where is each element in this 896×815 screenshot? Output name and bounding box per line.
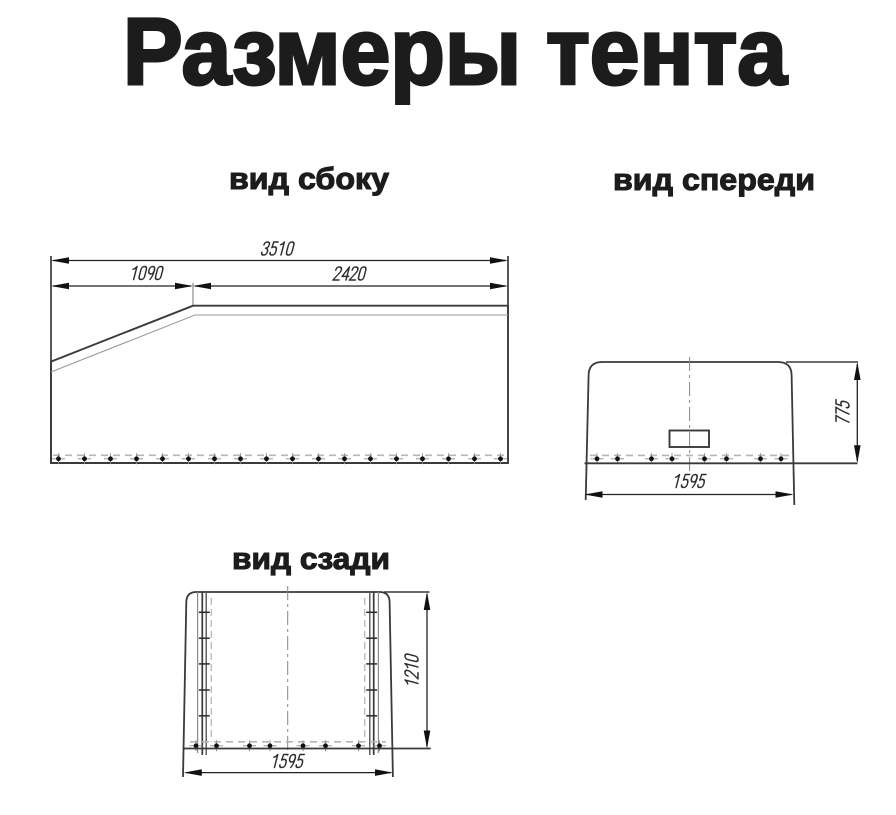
svg-text:вид сзади: вид сзади [232, 541, 390, 576]
svg-text:вид спереди: вид спереди [613, 162, 815, 197]
svg-text:Размеры тента: Размеры тента [123, 0, 788, 105]
svg-text:вид сбоку: вид сбоку [229, 161, 390, 196]
